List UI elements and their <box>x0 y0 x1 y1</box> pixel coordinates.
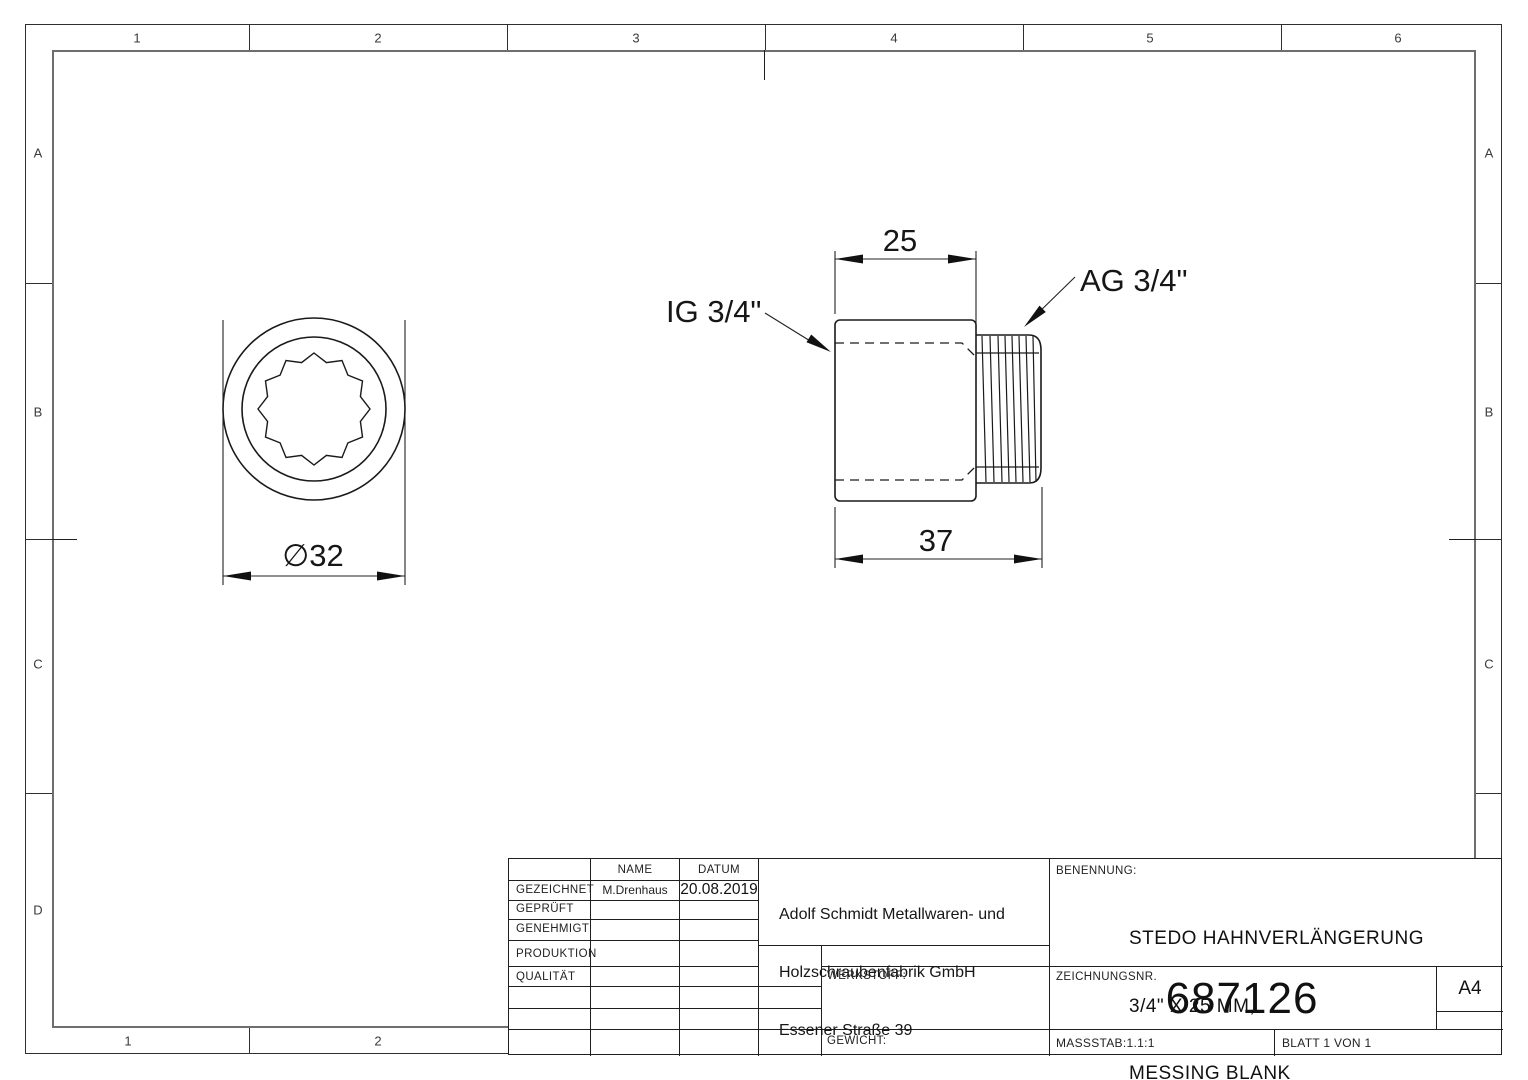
label-external-thread: AG 3/4" <box>1080 263 1188 298</box>
part-title-line: STEDO HAHNVERLÄNGERUNG <box>1129 928 1424 951</box>
front-view-inner-circle <box>242 337 386 481</box>
dim-text-width: 25 <box>883 223 917 258</box>
side-view-body <box>835 320 976 501</box>
dim-text-length: 37 <box>919 523 953 558</box>
werkstoff-label: WERKSTOFF: <box>827 970 906 982</box>
divider-line <box>509 1008 821 1009</box>
part-title-line: MESSING BLANK <box>1129 1063 1424 1080</box>
row-label: PRODUKTION <box>516 948 597 960</box>
divider-line <box>758 859 759 1056</box>
dim-text-diameter: ∅32 <box>282 538 344 573</box>
divider-line <box>509 966 758 967</box>
col-header-name: NAME <box>618 864 653 876</box>
leader-arrowhead-ig <box>807 335 832 353</box>
drawn-by-name: M.Drenhaus <box>602 883 667 897</box>
row-label: GENEHMIGT <box>516 923 589 935</box>
divider-line <box>509 919 758 920</box>
front-view-internal-serration <box>258 353 370 465</box>
drawn-date: 20.08.2019 <box>680 881 758 899</box>
title-block: NAME DATUM GEZEICHNET M.Drenhaus 20.08.2… <box>508 858 1502 1055</box>
divider-line <box>509 986 821 987</box>
row-label: QUALITÄT <box>516 971 575 983</box>
benennung-label: BENENNUNG: <box>1056 865 1137 877</box>
drawing-sheet: 1 2 3 4 5 6 1 2 A B C D A B C <box>0 0 1528 1080</box>
divider-line <box>1436 966 1437 1029</box>
col-header-date: DATUM <box>698 864 740 876</box>
thread-crest-lines <box>982 336 1036 482</box>
arrowhead <box>377 572 405 581</box>
row-label: GEZEICHNET <box>516 884 594 896</box>
sheet-count-label: BLATT 1 VON 1 <box>1282 1036 1372 1050</box>
arrowhead <box>948 255 976 264</box>
divider-line <box>509 940 758 941</box>
divider-line <box>1049 859 1050 1056</box>
arrowhead <box>835 555 863 564</box>
scale-label: MASSSTAB:1.1:1 <box>1056 1036 1155 1050</box>
arrowhead <box>223 572 251 581</box>
gewicht-label: GEWICHT: <box>827 1035 886 1047</box>
internal-thread-hidden-line-bottom <box>835 467 975 480</box>
row-label: GEPRÜFT <box>516 903 574 915</box>
divider-line <box>509 900 758 901</box>
dim-ext-lines-width <box>835 251 976 331</box>
company-line: Essener Straße 39 <box>779 1021 1005 1040</box>
leader-line-ig <box>765 313 815 344</box>
drawing-number: 687126 <box>1166 974 1319 1024</box>
label-internal-thread: IG 3/4" <box>666 294 761 329</box>
front-view-outer-circle <box>223 318 405 500</box>
company-line: Adolf Schmidt Metallwaren- und <box>779 905 1005 924</box>
divider-line <box>1436 1011 1503 1012</box>
sheet-format: A4 <box>1458 978 1481 1000</box>
leader-arrowhead-ag <box>1024 306 1046 327</box>
arrowhead <box>1014 555 1042 564</box>
zeichnungsnr-label: ZEICHNUNGSNR. <box>1056 971 1157 983</box>
internal-thread-hidden-line-top <box>835 343 975 356</box>
arrowhead <box>835 255 863 264</box>
